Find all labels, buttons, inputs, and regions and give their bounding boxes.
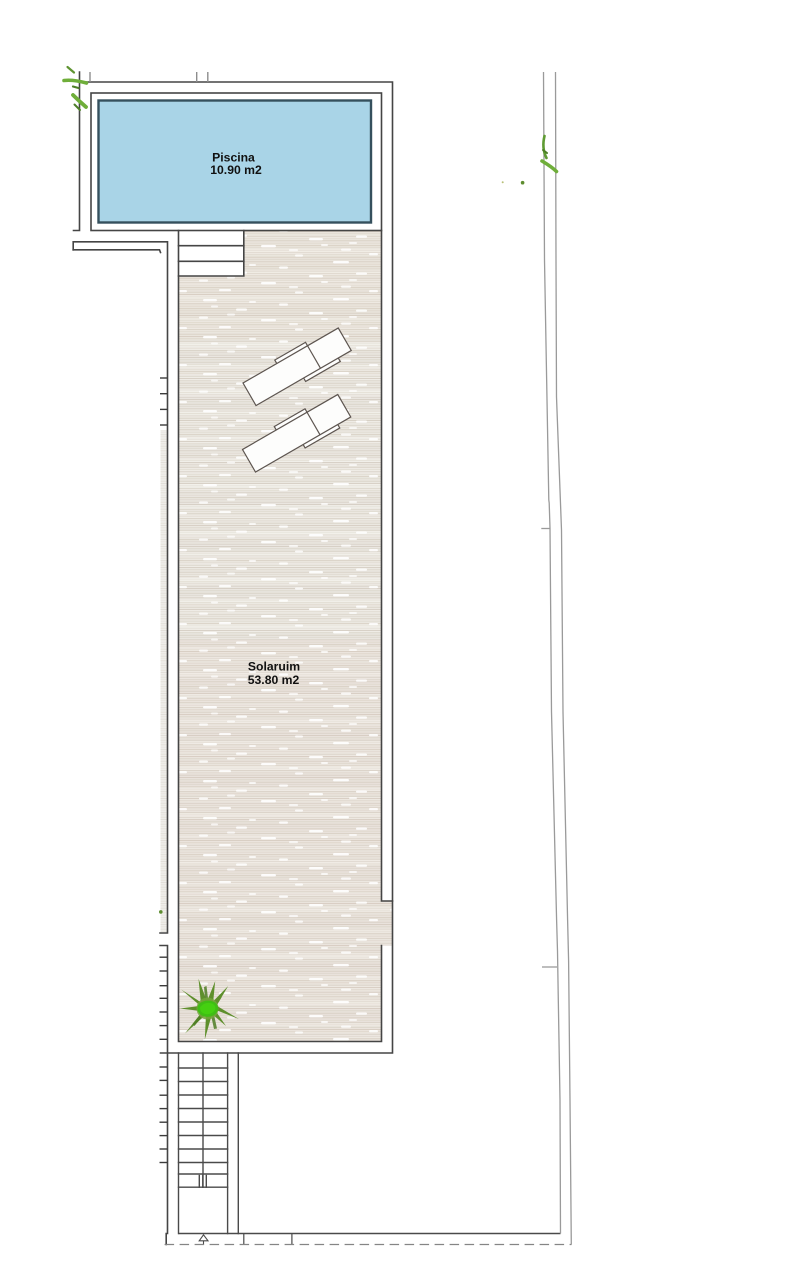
svg-text:10.90 m2: 10.90 m2: [210, 163, 262, 177]
svg-text:53.80 m2: 53.80 m2: [248, 673, 300, 687]
svg-text:Solaruim: Solaruim: [248, 660, 300, 674]
